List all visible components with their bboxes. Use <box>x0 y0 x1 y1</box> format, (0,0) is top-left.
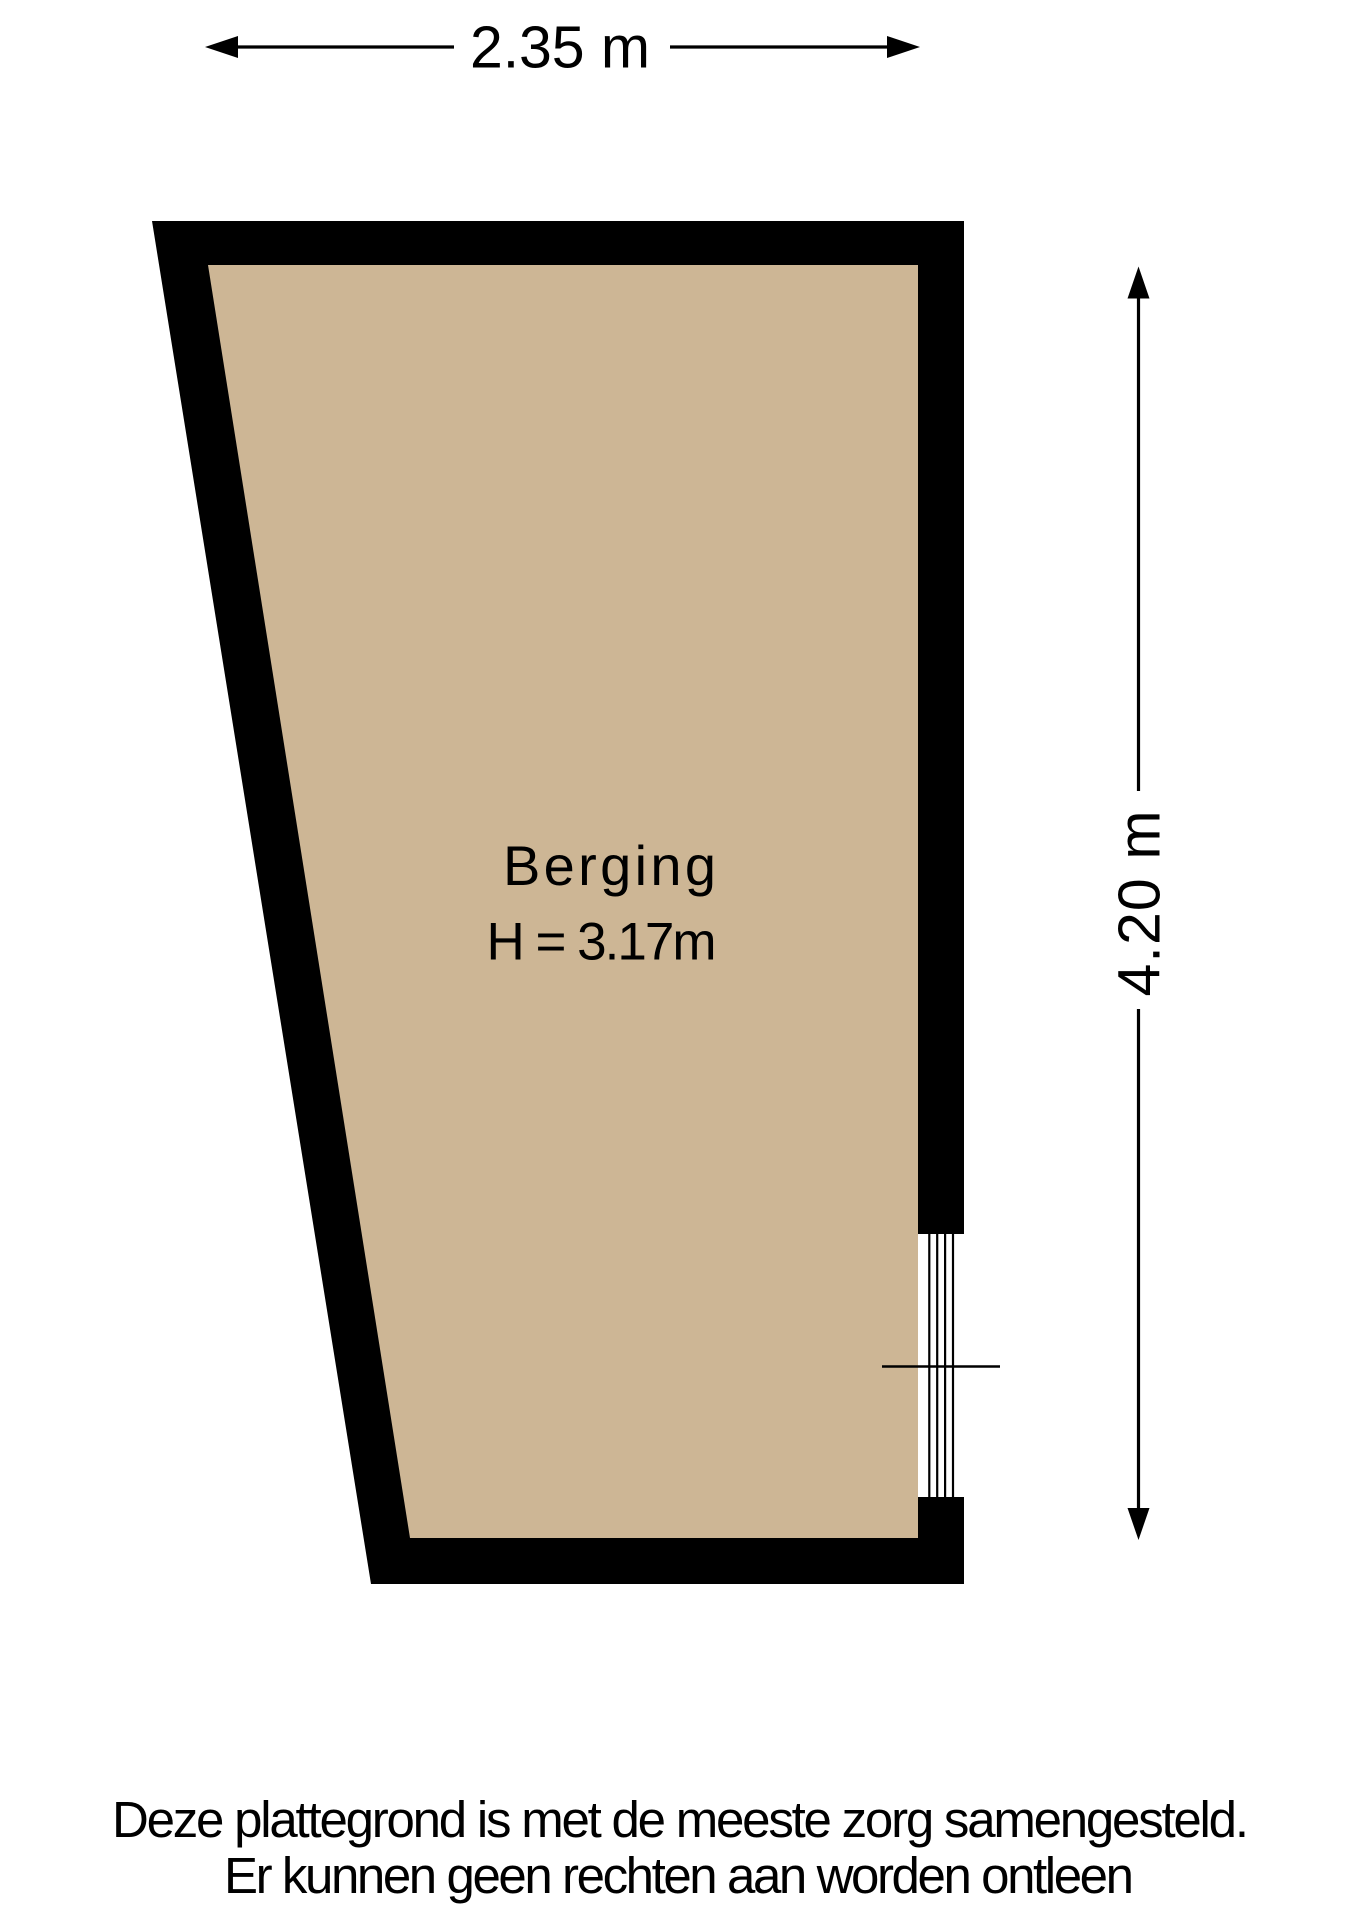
svg-text:Er kunnen geen rechten aan wor: Er kunnen geen rechten aan worden ontlee… <box>224 1847 1134 1904</box>
svg-text:4.20 m: 4.20 m <box>1107 811 1173 997</box>
svg-text:H = 3.17m: H = 3.17m <box>487 913 717 972</box>
svg-text:2.35 m: 2.35 m <box>470 15 650 81</box>
svg-text:Berging: Berging <box>503 834 716 897</box>
svg-text:Deze plattegrond is met de mee: Deze plattegrond is met de meeste zorg s… <box>112 1791 1249 1848</box>
